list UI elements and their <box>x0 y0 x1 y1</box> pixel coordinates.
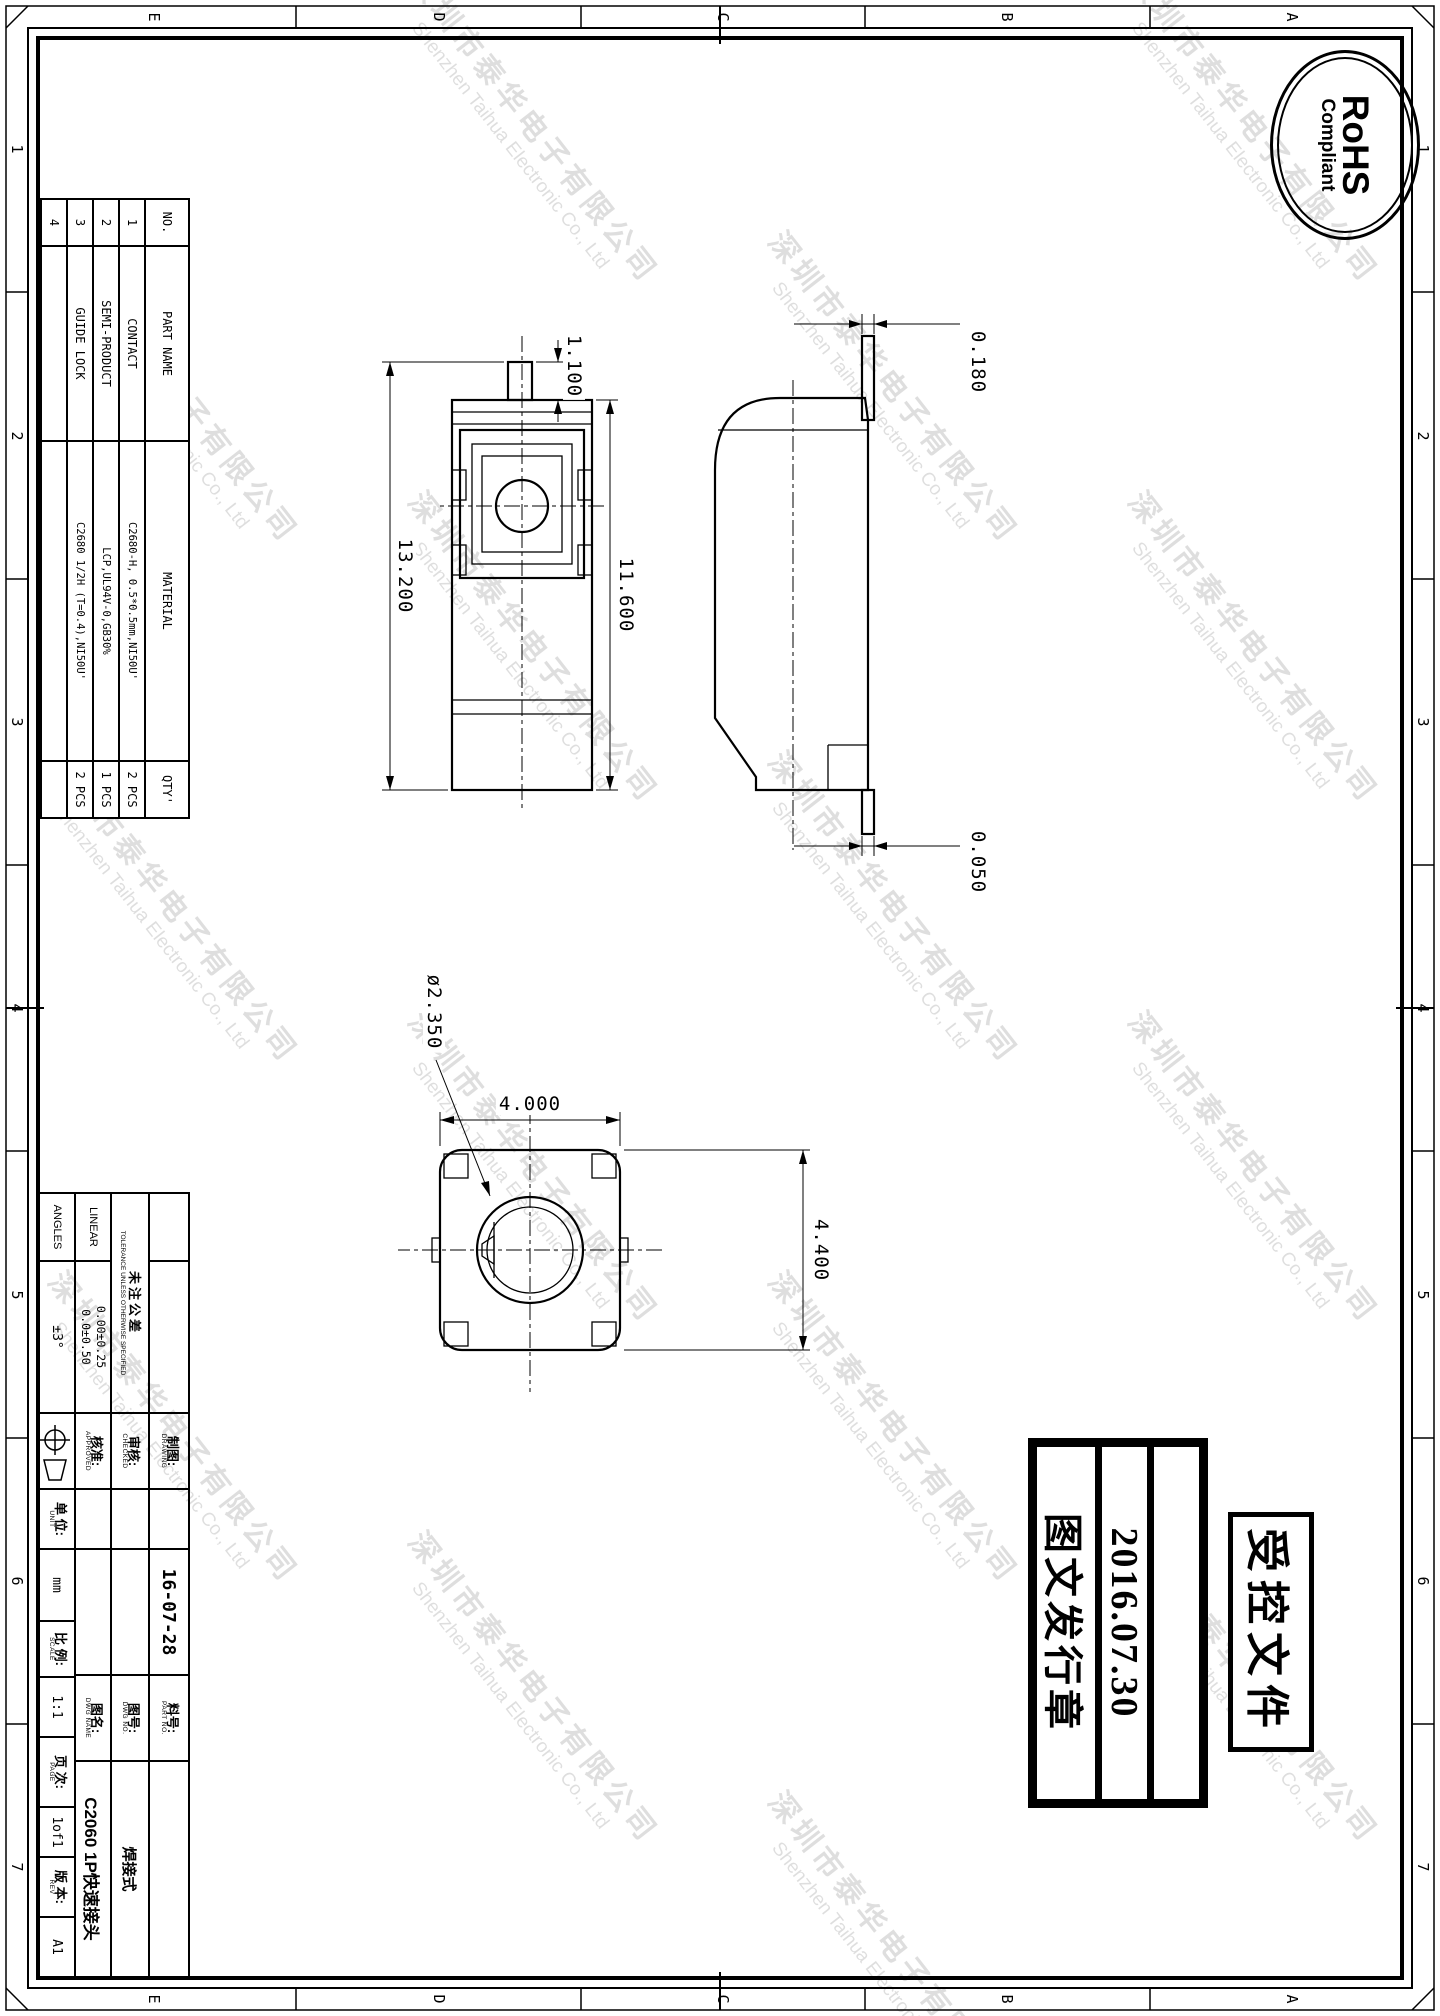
drawing-page: 深圳市泰华电子有限公司Shenzhen Taihua Electronic Co… <box>0 0 1440 2016</box>
rohs-subtitle: Compliant <box>1316 99 1337 192</box>
parts-cell-qty: 2 PCS <box>68 762 92 817</box>
dim-diameter: ø2.350 <box>423 972 445 1053</box>
rohs-logo-inner: RoHS Compliant <box>1277 57 1413 233</box>
dim-view-height: 4.000 <box>496 1093 564 1115</box>
tolerance-linear-val1: 0.00±0.25 <box>93 1306 108 1368</box>
drawing-sheet: 深圳市泰华电子有限公司Shenzhen Taihua Electronic Co… <box>0 0 1440 2016</box>
frame-row-label: B <box>998 1994 1016 2003</box>
parts-cell-no: 1 <box>120 200 144 245</box>
parts-cell-part-name: GUIDE LOCK <box>68 247 92 440</box>
tolerance-linear-values: 0.00±0.25 0.0±0.50 <box>74 1260 112 1414</box>
parts-cell-part-name <box>42 247 66 440</box>
parts-cell-no: 4 <box>42 200 66 245</box>
issue-stamp: 2016.07.30 图文发行章 <box>1028 1438 1208 1808</box>
parts-cell-no: 2 <box>94 200 118 245</box>
titleblock-drawing-signature <box>148 1488 190 1550</box>
titleblock-approved-label: 核准:APPROVED <box>74 1412 112 1490</box>
titleblock-rev-label: 版 本:REV <box>38 1856 76 1918</box>
titleblock-checked-label: 审核:CHECKED <box>110 1412 150 1490</box>
dim-view-width: 4.400 <box>810 1216 832 1284</box>
frame-col-label: 6 <box>8 1576 26 1585</box>
tolerance-angles-label: ANGLES <box>38 1192 76 1262</box>
frame-row-label: A <box>1283 12 1301 21</box>
titleblock-unit-value: mm <box>38 1548 76 1622</box>
frame-col-label: 4 <box>1414 1003 1432 1012</box>
frame-col-label: 5 <box>1414 1290 1432 1299</box>
parts-header-qty: QTY' <box>146 762 188 817</box>
front-view-centerlines <box>440 336 604 812</box>
titleblock-dwg-no-value: 焊接式 <box>110 1760 150 1978</box>
frame-col-label: 2 <box>1414 431 1432 440</box>
frame-row-label: B <box>998 12 1016 21</box>
tolerance-title-en: TOLERANCE UNLESS OTHERWISE SPECIFIED <box>119 1231 126 1376</box>
parts-cell-qty: 2 PCS <box>120 762 144 817</box>
dim-overall-length: 13.200 <box>394 536 416 617</box>
controlled-document-stamp: 受控文件 <box>1228 1512 1314 1752</box>
titleblock-date: 16-07-28 <box>148 1548 190 1676</box>
tolerance-empty-cell <box>148 1192 190 1262</box>
frame-row-label: E <box>145 12 163 21</box>
rohs-title: RoHS <box>1337 95 1374 196</box>
titleblock-projection-cell <box>38 1412 76 1490</box>
titleblock-unit-label: 单 位:UNIT <box>38 1488 76 1550</box>
frame-col-label: 1 <box>8 144 26 153</box>
tolerance-linear-label: LINEAR <box>74 1192 112 1262</box>
titleblock-dwg-name-label: 图名:DWG NAME <box>74 1674 112 1762</box>
titleblock-blank-cell <box>74 1548 112 1676</box>
titleblock-dwg-no-label: 图号:DWG NO. <box>110 1674 150 1762</box>
frame-col-label: 6 <box>1414 1576 1432 1585</box>
dim-body-length: 11.600 <box>615 555 637 636</box>
side-view <box>715 336 874 834</box>
parts-header-material: MATERIAL <box>146 442 188 760</box>
titleblock-scale-label: 比 例:SCALE <box>38 1620 76 1678</box>
parts-header-part-name: PART NAME <box>146 247 188 440</box>
titleblock-page-value: 1of1 <box>38 1806 76 1858</box>
tolerance-empty-cell <box>148 1260 190 1414</box>
frame-row-label: A <box>1283 1994 1301 2003</box>
parts-cell-no: 3 <box>68 200 92 245</box>
frame-row-label: D <box>430 1994 448 2003</box>
titleblock-checked-signature <box>110 1488 150 1550</box>
titleblock-blank-cell <box>110 1548 150 1676</box>
tolerance-angles-value: ±3° <box>38 1260 76 1414</box>
tolerance-header: 未注公差 TOLERANCE UNLESS OTHERWISE SPECIFIE… <box>110 1192 150 1414</box>
frame-col-label: 7 <box>8 1862 26 1871</box>
parts-cell-material: C2680 1/2H (T=0.4),NI50U' <box>68 442 92 760</box>
parts-cell-material <box>42 442 66 760</box>
titleblock-page-label: 页 次:PAGE <box>38 1736 76 1808</box>
parts-table: NO. PART NAME MATERIAL QTY' 1 CONTACT C2… <box>40 198 190 819</box>
parts-cell-part-name: SEMI-PRODUCT <box>94 247 118 440</box>
titleblock-rev-value: A1 <box>38 1916 76 1978</box>
parts-cell-qty <box>42 762 66 817</box>
titleblock-approved-signature <box>74 1488 112 1550</box>
parts-header-no: NO. <box>146 200 188 245</box>
frame-col-label: 3 <box>1414 717 1432 726</box>
issue-stamp-title: 图文发行章 <box>1037 1447 1095 1799</box>
parts-cell-material: C2680-H, 0.5*0.5mm,NI50U' <box>120 442 144 760</box>
tolerance-title-cn: 未注公差 <box>126 1271 141 1335</box>
frame-col-label: 7 <box>1414 1862 1432 1871</box>
frame-row-label: E <box>145 1994 163 2003</box>
dim-gap: 0.050 <box>967 828 989 896</box>
tolerance-linear-val2: 0.0±0.50 <box>78 1309 93 1364</box>
rohs-logo: RoHS Compliant <box>1270 50 1420 240</box>
titleblock-drawing-label: 制图:DRAWING <box>148 1412 190 1490</box>
dimension-arrows <box>386 320 887 1350</box>
dim-pin-length: 1.100 <box>563 332 585 400</box>
issue-stamp-blank-row <box>1154 1447 1199 1799</box>
titleblock-part-no-value <box>148 1760 190 1978</box>
frame-col-label: 4 <box>8 1003 26 1012</box>
frame-row-label: D <box>430 12 448 21</box>
frame-col-label: 3 <box>8 717 26 726</box>
frame-row-label: C <box>714 1994 732 2003</box>
dim-tab-thickness: 0.180 <box>967 328 989 396</box>
parts-cell-qty: 1 PCS <box>94 762 118 817</box>
titleblock-part-no-label: 料号:PART NO. <box>148 1674 190 1762</box>
parts-cell-material: LCP,UL94V-0,GB30% <box>94 442 118 760</box>
issue-stamp-date: 2016.07.30 <box>1095 1447 1154 1799</box>
titleblock-scale-value: 1:1 <box>38 1676 76 1738</box>
frame-row-label: C <box>714 12 732 21</box>
parts-cell-part-name: CONTACT <box>120 247 144 440</box>
frame-col-label: 5 <box>8 1290 26 1299</box>
frame-col-label: 2 <box>8 431 26 440</box>
titleblock-dwg-name-value: C2060 1P快速接头 <box>74 1760 112 1978</box>
drawing-geometry <box>0 0 1440 2016</box>
